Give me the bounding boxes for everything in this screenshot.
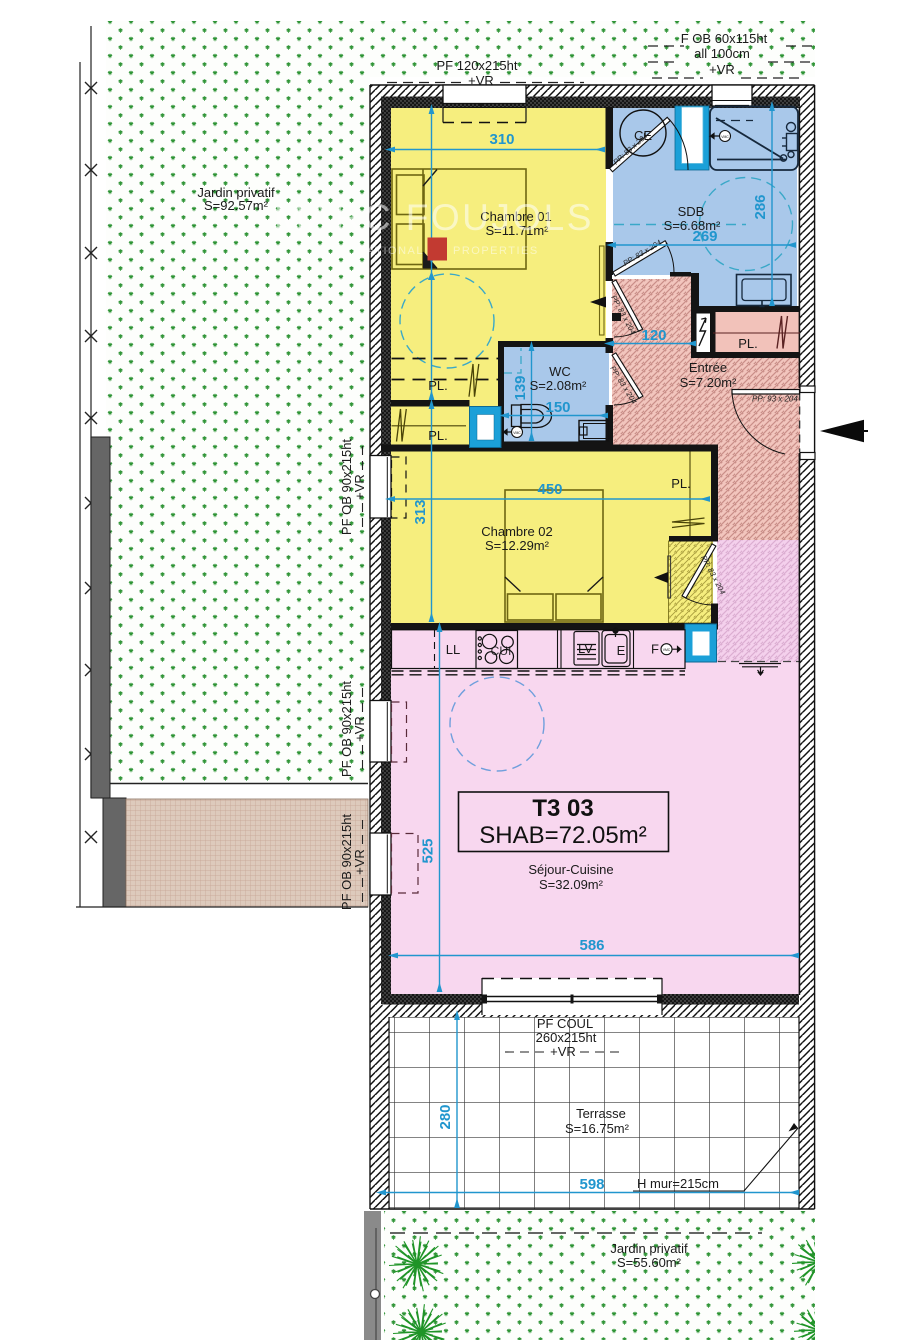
svg-text:+VR: +VR — [709, 62, 735, 77]
svg-text:260x215ht: 260x215ht — [536, 1030, 597, 1045]
svg-text:Entrée: Entrée — [689, 360, 727, 375]
svg-text:PL.: PL. — [428, 428, 448, 443]
svg-text:SHAB=72.05m²: SHAB=72.05m² — [479, 822, 646, 849]
svg-text:CE: CE — [634, 128, 652, 143]
svg-text:286: 286 — [752, 194, 769, 219]
svg-text:586: 586 — [579, 937, 604, 954]
svg-text:598: 598 — [579, 1176, 604, 1193]
svg-text:MARC FOUJOLS: MARC FOUJOLS — [274, 197, 594, 238]
svg-text:VMC: VMC — [721, 135, 729, 139]
svg-text:+VR: +VR — [352, 716, 367, 742]
svg-text:PROPERTIES: PROPERTIES — [453, 245, 539, 257]
svg-text:Chambre 02: Chambre 02 — [481, 524, 553, 539]
svg-text:450: 450 — [537, 481, 562, 498]
svg-text:+VR: +VR — [352, 474, 367, 500]
svg-text:VMC: VMC — [663, 648, 671, 652]
svg-text:F: F — [651, 642, 659, 657]
svg-text:525: 525 — [420, 838, 437, 863]
svg-text:313: 313 — [412, 499, 429, 524]
svg-text:Séjour-Cuisine: Séjour-Cuisine — [528, 862, 613, 877]
svg-text:NATIONAL: NATIONAL — [358, 245, 424, 257]
svg-text:280: 280 — [437, 1104, 454, 1129]
svg-text:T3 03: T3 03 — [532, 795, 593, 822]
svg-text:VMC: VMC — [513, 431, 521, 435]
svg-text:S=6.68m²: S=6.68m² — [664, 218, 721, 233]
svg-text:WC: WC — [549, 364, 571, 379]
svg-text:150: 150 — [545, 399, 570, 416]
svg-text:Jardin privatif: Jardin privatif — [610, 1241, 688, 1256]
svg-text:E: E — [617, 643, 626, 658]
svg-text:PL.: PL. — [671, 476, 691, 491]
svg-text:139: 139 — [512, 375, 529, 400]
svg-text:S=92.57m²: S=92.57m² — [204, 198, 269, 213]
svg-text:+VR: +VR — [468, 73, 494, 88]
svg-text:LV: LV — [578, 641, 593, 656]
svg-text:all 100cm: all 100cm — [694, 46, 750, 61]
svg-text:310: 310 — [489, 131, 514, 148]
svg-text:120: 120 — [641, 327, 666, 344]
svg-text:S=12.29m²: S=12.29m² — [485, 538, 550, 553]
svg-text:PL.: PL. — [738, 336, 758, 351]
svg-text:PF 120x215ht: PF 120x215ht — [437, 58, 518, 73]
svg-text:SDB: SDB — [678, 204, 705, 219]
svg-text:S=55.60m²: S=55.60m² — [617, 1255, 682, 1270]
svg-text:F OB 60x115ht: F OB 60x115ht — [681, 31, 768, 46]
svg-text:PL.: PL. — [428, 378, 448, 393]
svg-text:S=7.20m²: S=7.20m² — [680, 375, 737, 390]
svg-text:S=32.09m²: S=32.09m² — [539, 877, 604, 892]
svg-text:PP: 93 x 204: PP: 93 x 204 — [752, 395, 798, 404]
svg-text:Terrasse: Terrasse — [576, 1106, 626, 1121]
svg-text:S=16.75m²: S=16.75m² — [565, 1121, 630, 1136]
svg-text:+VR: +VR — [352, 849, 367, 875]
svg-text:S=2.08m²: S=2.08m² — [530, 378, 587, 393]
svg-text:PF COUL: PF COUL — [537, 1016, 593, 1031]
svg-text:CUI: CUI — [491, 644, 512, 658]
svg-text:+VR: +VR — [550, 1044, 576, 1059]
svg-text:H mur=215cm: H mur=215cm — [637, 1176, 719, 1191]
svg-text:LL: LL — [446, 642, 460, 657]
